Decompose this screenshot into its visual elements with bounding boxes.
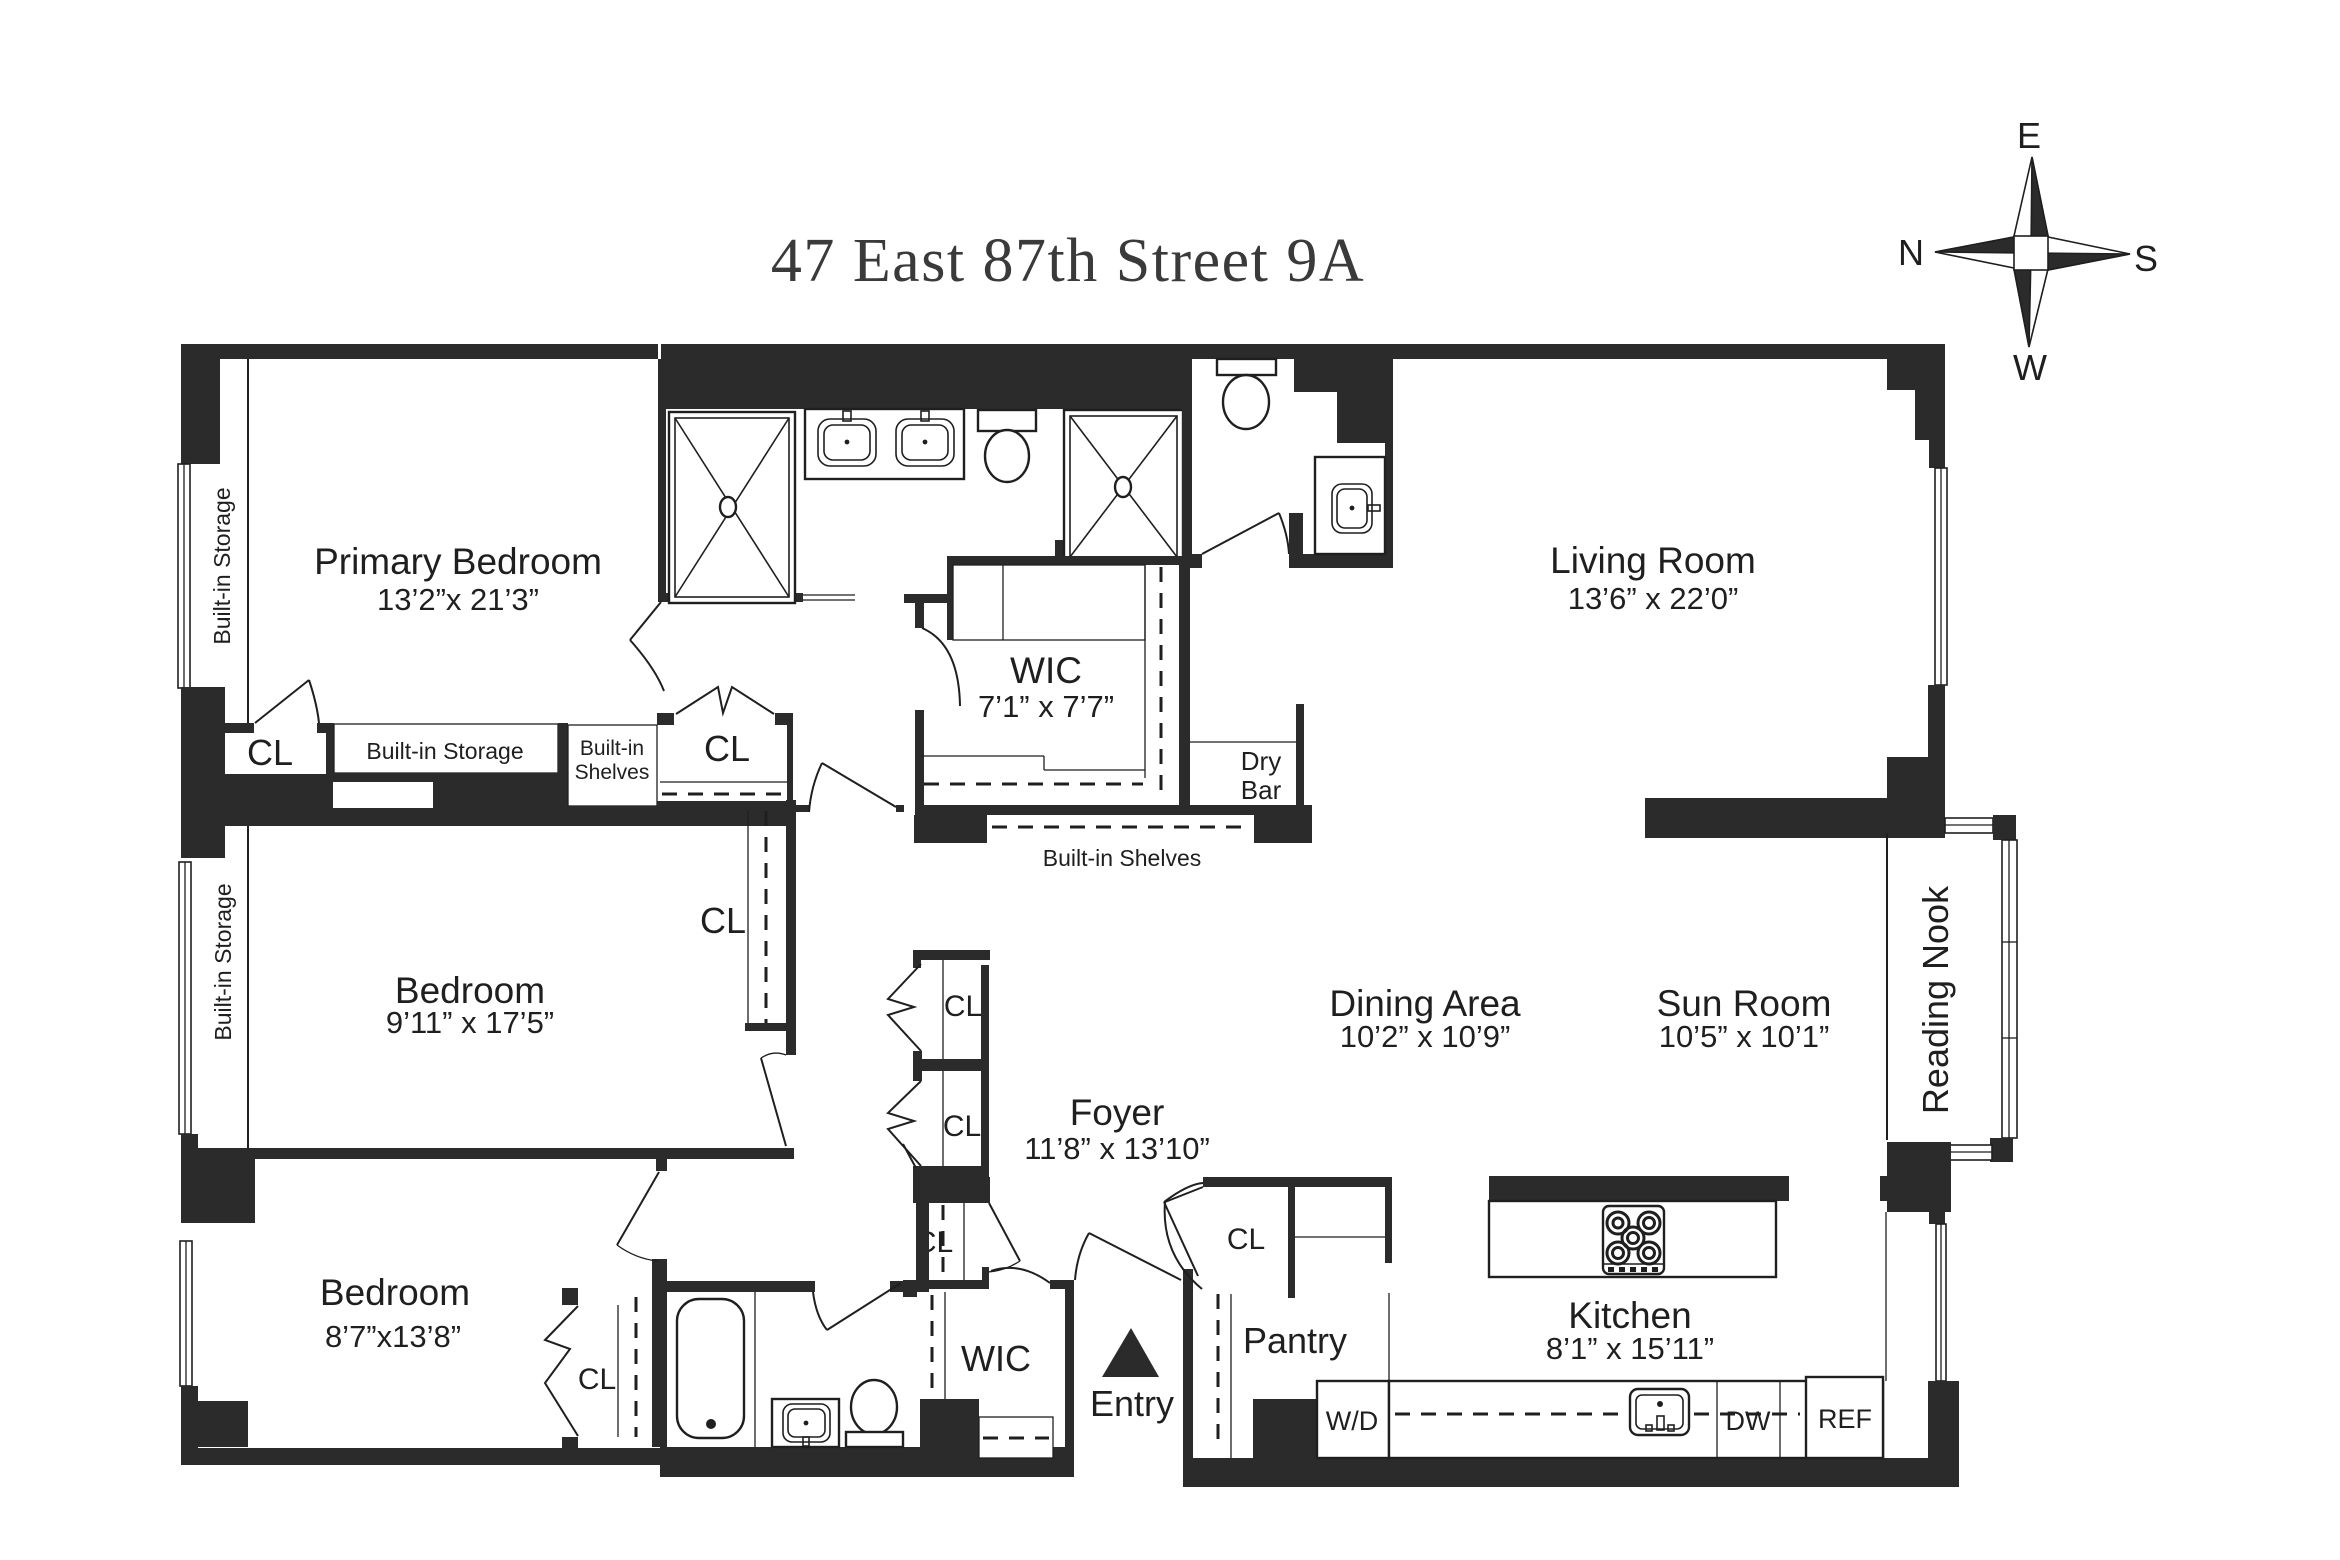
svg-text:S: S xyxy=(2134,238,2158,279)
svg-text:Dry: Dry xyxy=(1241,746,1281,776)
svg-text:8’7”x13’8”: 8’7”x13’8” xyxy=(325,1319,461,1354)
svg-text:Built-in Storage: Built-in Storage xyxy=(209,487,235,644)
svg-text:CL: CL xyxy=(943,1110,981,1143)
svg-text:Sun Room: Sun Room xyxy=(1657,983,1832,1024)
svg-text:Living Room: Living Room xyxy=(1550,540,1756,581)
svg-text:Built-in Storage: Built-in Storage xyxy=(366,738,523,764)
svg-text:Bar: Bar xyxy=(1241,775,1282,805)
svg-text:W/D: W/D xyxy=(1326,1406,1378,1436)
svg-text:Pantry: Pantry xyxy=(1243,1320,1347,1361)
svg-text:Built-in Shelves: Built-in Shelves xyxy=(1043,845,1202,871)
svg-text:WIC: WIC xyxy=(1010,650,1082,691)
svg-text:Bedroom: Bedroom xyxy=(320,1272,470,1313)
svg-text:10’5” x 10’1”: 10’5” x 10’1” xyxy=(1659,1019,1830,1054)
svg-text:W: W xyxy=(2013,347,2047,388)
svg-text:WIC: WIC xyxy=(961,1338,1031,1379)
svg-text:Entry: Entry xyxy=(1090,1383,1174,1424)
svg-text:CL: CL xyxy=(704,728,750,769)
svg-text:Shelves: Shelves xyxy=(575,761,650,784)
svg-text:8’1” x 15’11”: 8’1” x 15’11” xyxy=(1546,1331,1714,1366)
svg-text:13’6” x 22’0”: 13’6” x 22’0” xyxy=(1568,581,1739,616)
svg-text:Built-in Storage: Built-in Storage xyxy=(210,883,236,1040)
svg-text:11’8” x 13’10”: 11’8” x 13’10” xyxy=(1024,1131,1210,1166)
svg-text:7’1” x 7’7”: 7’1” x 7’7” xyxy=(978,689,1114,724)
svg-text:Kitchen: Kitchen xyxy=(1568,1295,1691,1336)
svg-text:Foyer: Foyer xyxy=(1070,1092,1165,1133)
svg-text:DW: DW xyxy=(1726,1406,1771,1436)
svg-text:CL: CL xyxy=(578,1363,616,1396)
svg-text:Built-in: Built-in xyxy=(580,737,644,760)
svg-text:CL: CL xyxy=(944,990,982,1023)
svg-text:13’2”x 21’3”: 13’2”x 21’3” xyxy=(377,582,539,617)
svg-text:REF: REF xyxy=(1818,1404,1872,1434)
svg-text:Reading Nook: Reading Nook xyxy=(1915,885,1956,1114)
svg-text:E: E xyxy=(2017,115,2041,156)
svg-text:9’11” x 17’5”: 9’11” x 17’5” xyxy=(386,1005,554,1040)
svg-text:CL: CL xyxy=(247,732,293,773)
svg-text:CL: CL xyxy=(1227,1223,1265,1256)
svg-text:10’2” x 10’9”: 10’2” x 10’9” xyxy=(1340,1019,1511,1054)
svg-text:N: N xyxy=(1898,232,1924,273)
svg-text:Dining Area: Dining Area xyxy=(1329,983,1521,1024)
svg-text:CL: CL xyxy=(700,900,746,941)
svg-text:47 East 87th Street 9A: 47 East 87th Street 9A xyxy=(771,227,1365,295)
svg-text:Primary Bedroom: Primary Bedroom xyxy=(314,541,602,582)
